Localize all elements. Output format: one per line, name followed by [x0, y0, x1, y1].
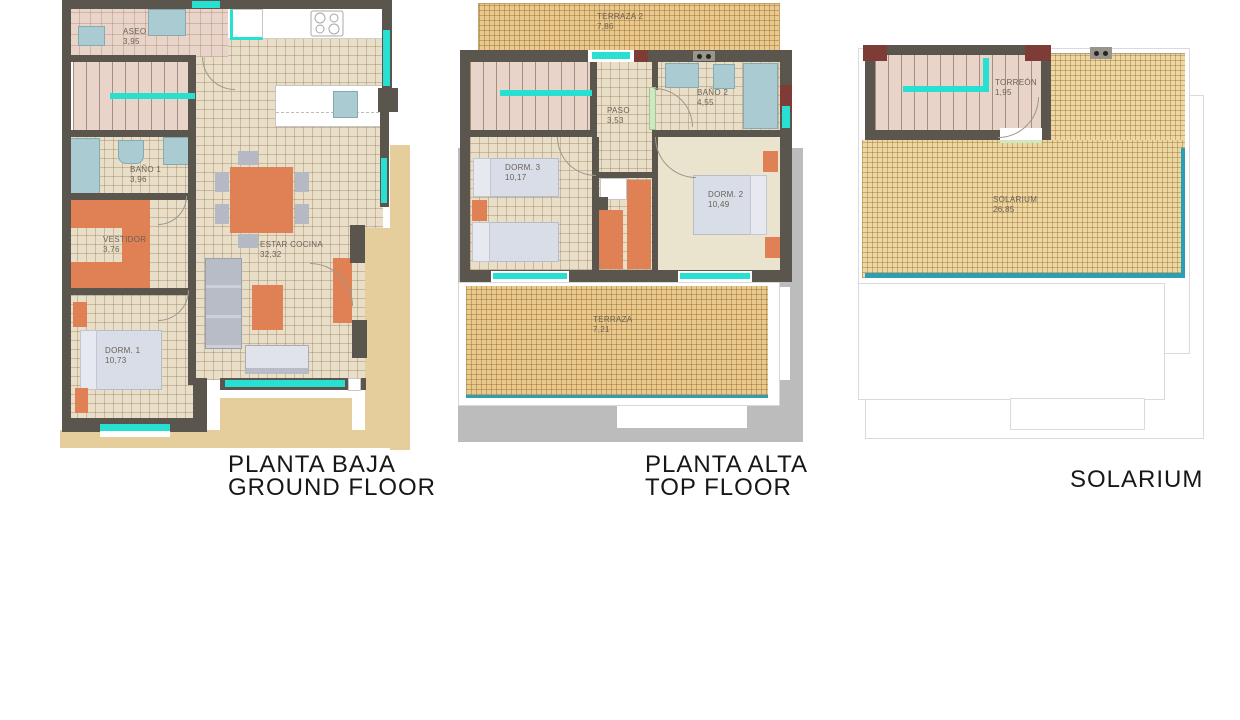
nightstand: [765, 237, 780, 258]
window: [381, 158, 387, 203]
chair: [238, 151, 258, 165]
window: [192, 1, 220, 8]
wall: [62, 0, 71, 432]
bed-pillow: [750, 175, 767, 235]
solarium-deck: [1050, 53, 1185, 141]
terrace-floor: [466, 286, 768, 395]
room-name: TORREÓN: [995, 78, 1037, 88]
room-name: VESTIDOR: [103, 235, 146, 245]
room-area: 10,49: [708, 200, 743, 210]
washing-machine-icon: [665, 63, 699, 88]
washing-machine-icon: [148, 9, 186, 36]
title-line-es: PLANTA BAJA: [228, 453, 436, 476]
ground-floor-title: PLANTA BAJA GROUND FLOOR: [228, 453, 436, 499]
room-name: TERRAZA 2: [597, 12, 643, 22]
wall: [193, 378, 207, 432]
window: [383, 30, 390, 86]
nightstand: [75, 388, 88, 413]
wall: [62, 0, 390, 9]
room-name: TERRAZA: [593, 315, 632, 325]
wall: [188, 195, 196, 295]
wall: [652, 137, 658, 270]
room-area: 32,32: [260, 250, 323, 260]
solarium-title: SOLARIUM: [1070, 468, 1203, 491]
wall: [62, 55, 196, 62]
wardrobe: [597, 210, 623, 269]
chair: [295, 172, 309, 192]
wall: [188, 295, 196, 385]
sheet-outline: [1010, 398, 1145, 430]
room-name: DORM. 3: [505, 163, 540, 173]
nightstand: [763, 151, 778, 172]
wardrobe: [70, 262, 150, 290]
window: [100, 424, 170, 431]
wall: [378, 88, 398, 112]
wall: [350, 225, 365, 263]
sheet-outline: [858, 283, 1165, 400]
wardrobe: [70, 200, 150, 228]
floor-plans-sheet: ASEO3,95 BAÑO 13,96 VESTIDOR3,76 DORM. 1…: [0, 0, 1240, 720]
room-area: 10,17: [505, 173, 540, 183]
room-label-estar: ESTAR COCINA32,32: [260, 240, 323, 259]
kitchen-sink-icon: [230, 9, 263, 40]
wall: [352, 320, 367, 358]
stair-rail: [903, 86, 989, 92]
room-label-dorm2: DORM. 210,49: [708, 190, 743, 209]
wall: [652, 62, 658, 90]
vent-icon: [693, 51, 715, 61]
wall: [470, 130, 594, 137]
room-area: 26,85: [993, 205, 1037, 215]
room-area: 10,73: [105, 356, 140, 366]
title-line-es: PLANTA ALTA: [645, 453, 808, 476]
window: [782, 106, 790, 128]
room-name: BAÑO 2: [697, 88, 728, 98]
island-dashed-edge: [276, 112, 384, 113]
coffee-table: [252, 285, 283, 330]
sand-terrain: [365, 228, 410, 448]
room-label-paso: PASO3,53: [607, 106, 630, 125]
room-area: 4,55: [697, 98, 728, 108]
bathtub-icon: [70, 138, 100, 196]
room-area: 1,95: [995, 88, 1037, 98]
bed-pillow: [472, 222, 490, 262]
room-area: 3,76: [103, 245, 146, 255]
room-label-vestidor: VESTIDOR3,76: [103, 235, 146, 254]
nightstand: [472, 200, 487, 221]
stove-icon: [310, 10, 344, 37]
room-label-solarium: SOLARIUM26,85: [993, 195, 1037, 214]
room-name: BAÑO 1: [130, 165, 161, 175]
bed-pillow: [80, 330, 97, 390]
staircase: [470, 62, 592, 132]
top-floor-plan: TERRAZA 27,86 PASO3,53 BAÑO 24,55 DORM. …: [455, 0, 807, 460]
title-line-en: GROUND FLOOR: [228, 476, 436, 499]
stair-rail: [110, 93, 195, 99]
window-sill: [100, 431, 170, 437]
chair: [215, 172, 229, 192]
deck-edge: [1181, 148, 1185, 278]
window: [592, 52, 630, 59]
wall-accent: [1025, 45, 1051, 61]
window: [225, 380, 345, 387]
room-name: DORM. 2: [708, 190, 743, 200]
wall: [460, 50, 470, 282]
window: [493, 273, 567, 279]
kitchen-island: [275, 85, 385, 127]
vent-icon: [1090, 47, 1112, 59]
ground-floor-plan: ASEO3,95 BAÑO 13,96 VESTIDOR3,76 DORM. 1…: [60, 0, 412, 460]
dining-table: [230, 167, 293, 233]
couch: [245, 345, 309, 374]
room-name: PASO: [607, 106, 630, 116]
pool-edge: [466, 395, 768, 398]
bed-pillow: [473, 158, 491, 197]
window: [680, 273, 750, 279]
patio-strip: [220, 390, 350, 398]
solarium-plan: TORREÓN1,95 SOLARIUM26,85: [855, 0, 1207, 460]
room-area: 3,96: [130, 175, 161, 185]
room-area: 7,21: [593, 325, 632, 335]
toilet-icon: [118, 140, 144, 164]
room-name: SOLARIUM: [993, 195, 1037, 205]
room-label-dorm1: DORM. 110,73: [105, 346, 140, 365]
bathtub-icon: [743, 63, 778, 129]
toilet-icon: [713, 64, 735, 89]
wall-corner-post: [348, 378, 361, 391]
wall: [62, 130, 196, 137]
room-label-torreon: TORREÓN1,95: [995, 78, 1037, 97]
room-label-dorm3: DORM. 310,17: [505, 163, 540, 182]
room-name: ESTAR COCINA: [260, 240, 323, 250]
wall: [188, 135, 196, 200]
room-label-bano2: BAÑO 24,55: [697, 88, 728, 107]
room-name: ASEO: [123, 27, 146, 37]
room-label-terraza: TERRAZA7,21: [593, 315, 632, 334]
washbasin-icon: [78, 26, 105, 46]
chair: [215, 204, 229, 224]
wall: [592, 172, 652, 178]
stair-rail: [500, 90, 592, 96]
wardrobe: [627, 180, 651, 269]
room-area: 7,86: [597, 22, 643, 32]
room-name: DORM. 1: [105, 346, 140, 356]
deck-edge: [865, 273, 1185, 278]
title-line-en: TOP FLOOR: [645, 476, 808, 499]
room-area: 3,95: [123, 37, 146, 47]
chair: [238, 234, 258, 248]
room-label-aseo: ASEO3,95: [123, 27, 146, 46]
island-sink-icon: [333, 91, 358, 118]
room-area: 3,53: [607, 116, 630, 126]
top-floor-title: PLANTA ALTA TOP FLOOR: [645, 453, 808, 499]
wall: [652, 130, 780, 137]
nightstand: [73, 302, 87, 327]
sofa: [205, 258, 242, 349]
room-label-terraza2: TERRAZA 27,86: [597, 12, 643, 31]
chair: [295, 204, 309, 224]
wall-accent: [863, 45, 887, 61]
title-line: SOLARIUM: [1070, 468, 1203, 491]
room-label-bano1: BAÑO 13,96: [130, 165, 161, 184]
